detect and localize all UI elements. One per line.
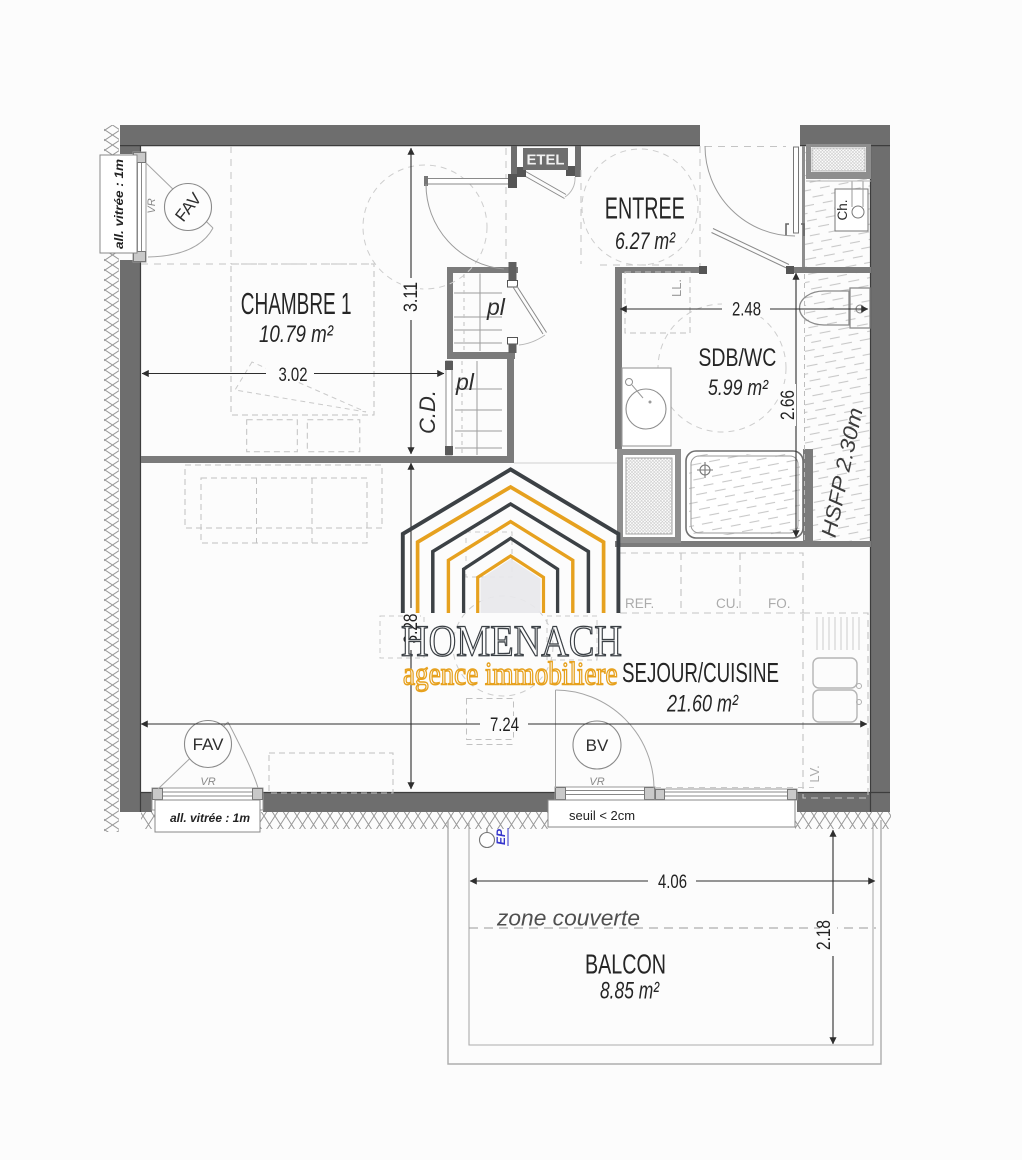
svg-text:pl: pl — [455, 369, 475, 395]
svg-text:VR: VR — [146, 198, 158, 213]
svg-text:CHAMBRE 1: CHAMBRE 1 — [241, 286, 352, 321]
svg-text:4.06: 4.06 — [658, 872, 687, 893]
svg-text:2.66: 2.66 — [778, 390, 799, 420]
svg-text:2.18: 2.18 — [814, 920, 835, 950]
svg-text:all. vitrée : 1m: all. vitrée : 1m — [112, 159, 126, 249]
svg-text:EP: EP — [494, 828, 508, 845]
svg-text:BV: BV — [586, 736, 609, 755]
svg-text:SEJOUR/CUISINE: SEJOUR/CUISINE — [622, 657, 779, 688]
svg-text:LV.: LV. — [807, 765, 822, 782]
svg-text:3.02: 3.02 — [279, 365, 308, 386]
svg-text:ETEL: ETEL — [527, 153, 565, 169]
svg-text:Ch.: Ch. — [835, 199, 850, 220]
svg-text:ENTREE: ENTREE — [605, 191, 685, 226]
svg-text:C.D.: C.D. — [415, 390, 440, 434]
svg-text:5.99 m²: 5.99 m² — [708, 375, 769, 400]
svg-text:VR: VR — [200, 776, 215, 788]
svg-text:LL.: LL. — [669, 279, 684, 297]
svg-text:3.11: 3.11 — [401, 282, 422, 312]
svg-text:all. vitrée : 1m: all. vitrée : 1m — [170, 811, 250, 825]
svg-text:2.48: 2.48 — [732, 300, 761, 321]
svg-text:7.24: 7.24 — [490, 715, 519, 736]
svg-text:CU.: CU. — [716, 596, 739, 611]
svg-text:10.79 m²: 10.79 m² — [259, 321, 334, 348]
svg-text:seuil < 2cm: seuil < 2cm — [569, 808, 635, 823]
svg-text:VR: VR — [589, 776, 604, 788]
svg-text:FO.: FO. — [768, 596, 791, 611]
svg-text:BALCON: BALCON — [585, 949, 666, 980]
svg-text:agence immobiliere: agence immobiliere — [403, 657, 618, 693]
svg-text:8.85 m²: 8.85 m² — [600, 978, 660, 1005]
svg-text:21.60 m²: 21.60 m² — [666, 691, 738, 718]
svg-text:pl: pl — [486, 294, 506, 320]
svg-text:REF.: REF. — [625, 596, 654, 611]
svg-text:6.27 m²: 6.27 m² — [615, 228, 676, 255]
svg-text:FAV: FAV — [193, 735, 225, 754]
svg-text:zone couverte: zone couverte — [496, 906, 640, 931]
svg-text:SDB/WC: SDB/WC — [698, 344, 776, 372]
